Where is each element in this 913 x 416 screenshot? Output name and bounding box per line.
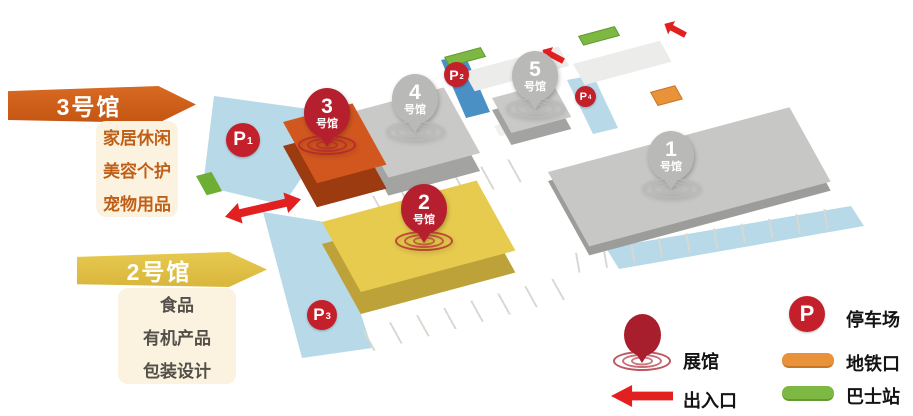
banner-title: 2号馆 [127, 253, 192, 287]
callout-item: 有机产品 [143, 324, 211, 349]
callout-item: 食品 [160, 291, 194, 316]
pin-suffix: 号馆 [316, 119, 338, 130]
parking-badge-p4: P4 [575, 86, 596, 107]
parking-letter: P [800, 301, 815, 327]
parking-badge-p1: P1 [226, 123, 260, 157]
pin-suffix: 号馆 [524, 82, 546, 93]
hall-2-callout-banner: 2号馆 [77, 252, 267, 287]
banner-title: 3号馆 [57, 88, 122, 122]
bus-stop-mark [578, 26, 620, 45]
legend-pin-icon [619, 314, 665, 363]
hall-4-pin: 4号馆 [387, 74, 443, 133]
parking-badge-p2: P2 [444, 62, 469, 87]
legend-parking-icon: P [789, 296, 825, 332]
parking-letter: P [313, 305, 324, 325]
pin-number: 2 [418, 192, 430, 214]
metro-entrance-mark [650, 85, 683, 106]
callout-item: 家居休闲 [103, 124, 171, 149]
building-slab [573, 41, 672, 85]
pin-number: 4 [409, 82, 421, 104]
callout-item: 宠物用品 [103, 190, 171, 215]
pin-tail-icon [524, 93, 546, 110]
hall-1-pin: 1号馆 [643, 131, 699, 190]
legend-bus-icon [782, 386, 834, 401]
parking-letter: P [449, 67, 458, 83]
legend-label-bus: 巴士站 [846, 383, 900, 409]
parking-letter: P [233, 129, 246, 151]
hall-5-pin: 5号馆 [507, 51, 563, 110]
pin-number: 1 [665, 139, 677, 161]
legend-label-entrance: 出入口 [683, 387, 737, 413]
hall-2-pin: 2号馆 [396, 184, 452, 243]
pin-tail-icon [316, 130, 338, 147]
legend-arrow-icon [611, 385, 673, 407]
parking-number: 1 [247, 137, 253, 147]
parking-number: 2 [460, 73, 464, 81]
pin-suffix: 号馆 [413, 215, 435, 226]
pin-tail-icon [413, 226, 435, 243]
legend-label-parking: 停车场 [846, 306, 900, 332]
pin-tail-icon [404, 116, 426, 133]
pin-tail-icon [660, 173, 682, 190]
legend-label-metro: 地铁口 [846, 350, 900, 376]
hall-3-callout-box: 家居休闲 美容个护 宠物用品 [96, 121, 178, 217]
pin-number: 5 [529, 59, 541, 81]
hall-3-pin: 3号馆 [299, 88, 355, 147]
parking-number: 4 [588, 95, 591, 101]
entrance-arrow-icon [661, 17, 689, 42]
callout-item: 美容个护 [103, 157, 171, 182]
parking-number: 3 [326, 312, 331, 321]
parking-letter: P [580, 91, 587, 103]
legend-metro-icon [782, 353, 834, 368]
callout-item: 包装设计 [143, 357, 211, 382]
hall-3-callout-banner: 3号馆 [8, 86, 196, 123]
hall-2-callout-box: 食品 有机产品 包装设计 [118, 288, 236, 384]
parking-badge-p3: P3 [307, 300, 337, 330]
pin-number: 3 [321, 96, 333, 118]
pin-tail-icon [633, 349, 651, 363]
pin-suffix: 号馆 [404, 105, 426, 116]
legend-label-hall: 展馆 [683, 348, 719, 374]
exhibition-venue-map: P1 P2 P3 P4 1号馆 4号馆 5号馆 3号馆 2号馆 3号馆 家居休闲… [0, 0, 913, 416]
pin-suffix: 号馆 [660, 162, 682, 173]
